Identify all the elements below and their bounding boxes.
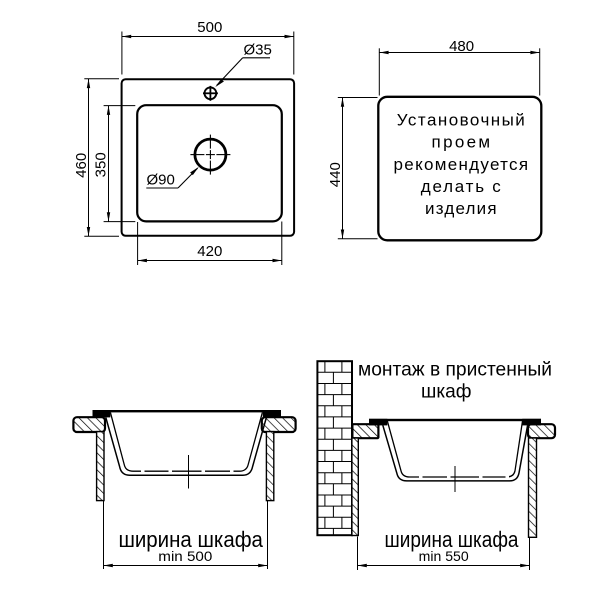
svg-text:шкаф: шкаф [421, 381, 472, 403]
svg-text:350: 350 [93, 152, 110, 177]
svg-text:500: 500 [197, 19, 222, 36]
svg-text:420: 420 [197, 243, 222, 260]
svg-text:Ø90: Ø90 [147, 172, 175, 189]
svg-text:min 500: min 500 [158, 548, 212, 564]
svg-text:делать с: делать с [421, 177, 502, 196]
svg-text:проем: проем [432, 133, 491, 152]
svg-text:изделия: изделия [425, 199, 497, 218]
svg-text:440: 440 [327, 162, 344, 187]
svg-text:монтаж в пристенный: монтаж в пристенный [358, 359, 552, 381]
svg-text:Ø35: Ø35 [244, 42, 272, 59]
svg-text:Установочный: Установочный [397, 110, 525, 129]
svg-text:min 550: min 550 [419, 548, 469, 564]
svg-text:480: 480 [449, 38, 474, 55]
svg-text:460: 460 [73, 153, 90, 178]
